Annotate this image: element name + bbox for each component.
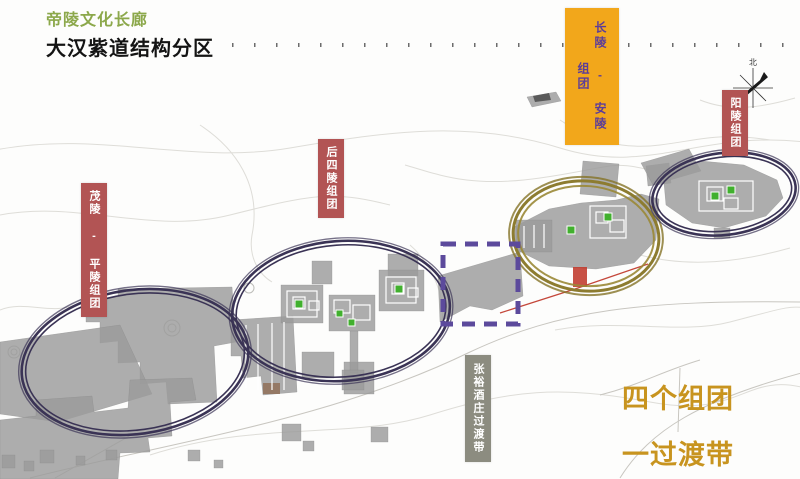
group-label-maoling-pingling: 茂陵 - 平陵组团: [81, 183, 107, 317]
page-subtitle: 帝陵文化长廊: [46, 6, 214, 30]
compass-north-label: 北: [749, 58, 757, 67]
title-block: 帝陵文化长廊 大汉紫道结构分区: [46, 6, 214, 61]
page-title: 大汉紫道结构分区: [46, 32, 214, 61]
group-label-housiling: 后四陵组团: [318, 139, 344, 218]
summary-line-groups: 四个组团: [622, 377, 734, 416]
group-label-yangling: 阳陵组团: [722, 90, 748, 156]
summary-line-belt: 一过渡带: [622, 433, 734, 472]
group-label-changling-anling: 长陵 - 安陵组团: [565, 8, 619, 145]
summary-block: 四个组团 一过渡带: [622, 377, 734, 479]
group-label-zhangyu-transition: 张裕酒庄过渡带: [465, 355, 491, 462]
planning-map-page: 北 帝陵文化长廊 大汉紫道结构分区 茂陵 - 平陵组团 后四陵组团 长陵 - 安…: [0, 0, 800, 479]
